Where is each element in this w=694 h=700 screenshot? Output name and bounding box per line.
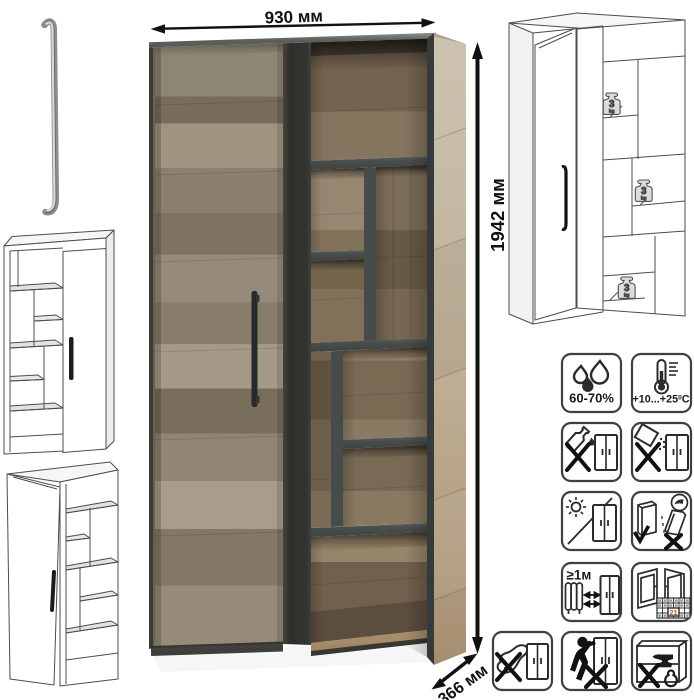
svg-text:60-70%: 60-70% [569,391,614,406]
svg-text:1942 мм: 1942 мм [487,178,508,252]
svg-text:21: 21 [669,608,677,617]
svg-text:930 мм: 930 мм [264,6,323,27]
svg-text:+10...+250С: +10...+250С [632,394,689,406]
svg-text:≥1м: ≥1м [567,568,592,583]
